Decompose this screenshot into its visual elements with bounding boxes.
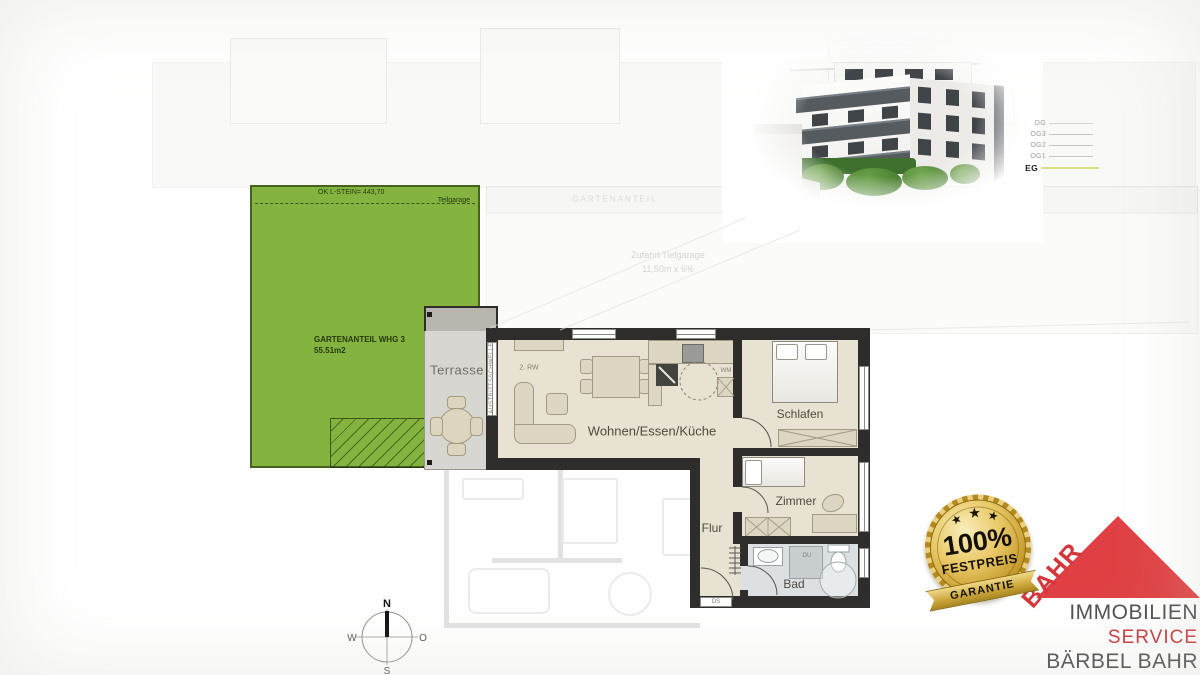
faint-site-lines [490, 218, 1190, 330]
annotation-du: DU [803, 553, 812, 559]
bath-sink-basin [758, 550, 778, 563]
stove-mark [659, 367, 675, 383]
floorplan-page: GARTENANTEIL Zufahrt Tiefgarage 11,50m x… [0, 0, 1200, 675]
kitchen-round-table [680, 362, 718, 400]
bath-round-fixture [820, 562, 856, 598]
annotation-wm: WM [721, 368, 732, 374]
desk-chair [820, 491, 847, 515]
door-arc-zimmer [742, 487, 768, 513]
annotation-rw: 2. RW [519, 365, 538, 372]
room-label-zimmer: Zimmer [776, 494, 817, 508]
annotation-ds: DS [712, 599, 720, 605]
wardrobe-cross-lines [718, 378, 856, 536]
room-label-bad: Bad [783, 577, 804, 591]
room-label-terrasse: Terrasse [430, 363, 484, 378]
door-arc-schlafen [742, 418, 771, 447]
room-label-flur: Flur [702, 521, 723, 535]
door-arc-entrance [701, 568, 733, 600]
radiator [729, 546, 741, 575]
room-label-schlafen: Schlafen [777, 407, 824, 421]
door-arc-bad [748, 566, 777, 595]
annotation-schwelle: AUSTRITTSSCHWELLE [489, 342, 495, 413]
room-label-wohnen: Wohnen/Essen/Küche [588, 424, 716, 439]
plan-symbols [0, 0, 1200, 675]
